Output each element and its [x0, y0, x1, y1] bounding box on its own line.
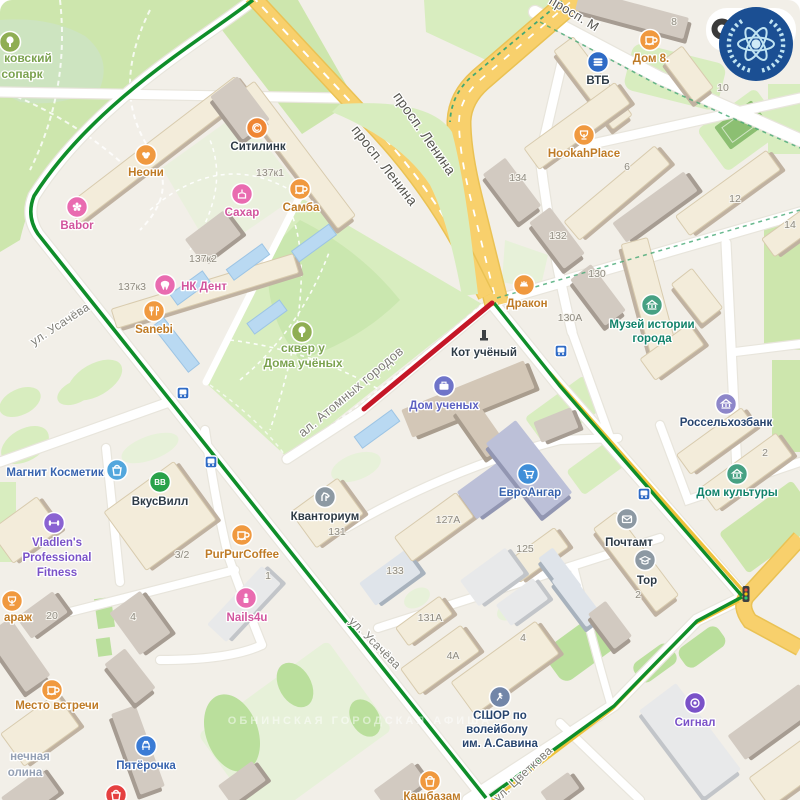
svg-text:4A: 4A: [447, 650, 460, 662]
svg-text:137к2: 137к2: [189, 253, 217, 265]
svg-text:131A: 131A: [418, 612, 443, 624]
svg-text:ВТБ: ВТБ: [586, 75, 609, 87]
svg-text:НК Дент: НК Дент: [181, 281, 227, 293]
svg-text:130A: 130A: [558, 312, 583, 324]
svg-text:HookahPlace: HookahPlace: [548, 148, 620, 160]
svg-text:8: 8: [671, 16, 677, 28]
svg-text:Неони: Неони: [128, 167, 164, 179]
svg-text:Дом ученых: Дом ученых: [409, 400, 479, 412]
svg-text:2: 2: [762, 447, 768, 459]
svg-text:Сахар: Сахар: [225, 207, 260, 219]
svg-text:Babor: Babor: [60, 220, 94, 232]
svg-text:127A: 127A: [436, 514, 461, 526]
svg-text:Тор: Тор: [637, 575, 657, 587]
svg-text:125: 125: [516, 543, 534, 555]
svg-text:20: 20: [46, 610, 58, 622]
svg-text:олина: олина: [8, 767, 43, 779]
svg-text:2: 2: [635, 589, 641, 601]
svg-text:Место встречи: Место встречи: [15, 700, 99, 712]
svg-text:132: 132: [549, 230, 567, 242]
svg-text:1: 1: [265, 570, 271, 582]
svg-text:133: 133: [386, 565, 404, 577]
svg-text:города: города: [632, 333, 672, 345]
svg-text:Самба: Самба: [283, 202, 320, 214]
svg-text:нечная: нечная: [10, 751, 50, 763]
svg-text:ОБНИНСКАЯ ГОРОДСКАЯ АФИША: ОБНИНСКАЯ ГОРОДСКАЯ АФИША: [228, 715, 492, 727]
svg-text:сопарк: сопарк: [1, 67, 43, 81]
svg-text:Магнит Косметик: Магнит Косметик: [6, 467, 103, 479]
svg-text:им. А.Савина: им. А.Савина: [462, 738, 538, 750]
svg-text:ВкусВилл: ВкусВилл: [132, 496, 189, 508]
svg-text:6: 6: [624, 161, 630, 173]
svg-text:130: 130: [588, 268, 606, 280]
svg-text:PurPurCoffee: PurPurCoffee: [205, 549, 279, 561]
svg-text:Пятёрочка: Пятёрочка: [116, 760, 176, 772]
svg-text:Кашбазам: Кашбазам: [403, 791, 460, 800]
svg-text:Дом культуры: Дом культуры: [696, 487, 777, 499]
svg-text:ВВ: ВВ: [154, 478, 166, 487]
svg-text:4: 4: [130, 611, 136, 623]
svg-text:Почтамт: Почтамт: [605, 537, 653, 549]
svg-text:12: 12: [729, 193, 741, 205]
svg-text:4: 4: [520, 632, 526, 644]
svg-text:3/2: 3/2: [175, 549, 190, 561]
svg-text:Дракон: Дракон: [506, 298, 547, 310]
svg-text:Музей истории: Музей истории: [609, 319, 694, 331]
svg-text:ковский: ковский: [4, 51, 52, 65]
svg-text:10: 10: [717, 82, 729, 94]
svg-text:сквер у: сквер у: [281, 341, 325, 355]
svg-text:134: 134: [509, 172, 527, 184]
svg-text:14: 14: [784, 219, 796, 231]
svg-text:Nails4u: Nails4u: [227, 612, 268, 624]
svg-text:Кот учёный: Кот учёный: [451, 347, 517, 359]
svg-text:Ситилинк: Ситилинк: [230, 141, 285, 153]
svg-text:ЕвроАнгар: ЕвроАнгар: [499, 487, 561, 499]
svg-text:Дом 8.: Дом 8.: [633, 53, 670, 65]
svg-text:137к1: 137к1: [256, 167, 284, 179]
svg-text:Дома учёных: Дома учёных: [263, 356, 342, 370]
svg-text:131: 131: [328, 526, 346, 538]
svg-text:Сигнал: Сигнал: [675, 717, 716, 729]
svg-text:137к3: 137к3: [118, 281, 146, 293]
svg-text:Кванториум: Кванториум: [291, 511, 360, 523]
svg-text:Vladlen's: Vladlen's: [32, 537, 82, 549]
svg-text:Fitness: Fitness: [37, 567, 77, 579]
svg-text:Sanebi: Sanebi: [135, 324, 173, 336]
svg-text:Professional: Professional: [22, 552, 91, 564]
svg-text:Россельхозбанк: Россельхозбанк: [680, 417, 773, 429]
svg-text:араж: араж: [4, 612, 33, 624]
